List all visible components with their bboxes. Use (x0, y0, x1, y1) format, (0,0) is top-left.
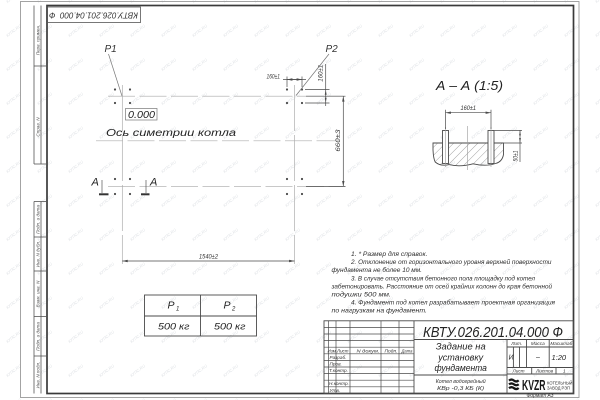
svg-text:А – А (1:5): А – А (1:5) (435, 79, 503, 93)
svg-text:Р: Р (224, 300, 231, 312)
svg-text:Котел водогрейный: Котел водогрейный (436, 378, 486, 385)
svg-text:Лист: Лист (512, 369, 525, 374)
svg-text:Дата: Дата (401, 349, 413, 354)
svg-text:фундамента: фундамента (434, 363, 487, 374)
svg-text:P1: P1 (105, 44, 117, 55)
svg-text:Масса: Масса (531, 341, 545, 346)
svg-text:–: – (535, 355, 540, 362)
svg-text:А: А (149, 176, 157, 188)
svg-text:Задание на: Задание на (436, 341, 486, 352)
svg-text:Н.контр.: Н.контр. (329, 381, 349, 386)
svg-text:Р: Р (168, 300, 175, 312)
svg-text:1: 1 (176, 307, 179, 313)
svg-text:Подп. и дата: Подп. и дата (35, 205, 40, 234)
svg-text:ЗАВОД РЭП: ЗАВОД РЭП (547, 386, 570, 391)
svg-text:Перв. примен.: Перв. примен. (35, 25, 40, 56)
svg-text:660±3: 660±3 (335, 129, 342, 151)
svg-text:Разраб.: Разраб. (330, 355, 347, 360)
svg-text:1540±2: 1540±2 (199, 253, 218, 260)
svg-text:Утв.: Утв. (330, 388, 341, 393)
svg-text:Инв. N подл.: Инв. N подл. (35, 362, 40, 389)
svg-text:160±1: 160±1 (318, 65, 324, 82)
svg-text:забетонировать. Расстояние от: забетонировать. Расстояние от осей крайн… (331, 282, 553, 290)
svg-text:Т.контр.: Т.контр. (329, 368, 348, 373)
svg-text:500 кг: 500 кг (158, 322, 190, 333)
svg-text:фундамента не более 10 мм.: фундамента не более 10 мм. (332, 266, 423, 274)
svg-text:Изм.Лист: Изм.Лист (328, 349, 349, 354)
svg-text:2: 2 (231, 307, 236, 313)
svg-text:500 кг: 500 кг (214, 322, 246, 333)
svg-text:КВТУ.026.201.04.000 Ф: КВТУ.026.201.04.000 Ф (423, 324, 563, 341)
svg-text:Взам. инв. N: Взам. инв. N (35, 280, 40, 307)
svg-text:Подп. и дата: Подп. и дата (35, 322, 40, 351)
svg-text:160±1: 160±1 (461, 106, 477, 112)
svg-text:Справ. N: Справ. N (35, 117, 40, 137)
svg-text:Инв. N дубл.: Инв. N дубл. (35, 241, 40, 268)
svg-text:1: 1 (563, 369, 566, 374)
svg-text:P2: P2 (326, 44, 339, 55)
svg-text:Пров.: Пров. (330, 362, 342, 367)
svg-text:Масштаб: Масштаб (550, 341, 572, 346)
svg-text:Подп.: Подп. (385, 349, 398, 354)
svg-text:КВр -0,3 КБ (К): КВр -0,3 КБ (К) (437, 386, 484, 392)
svg-text:50±1: 50±1 (514, 151, 520, 162)
svg-text:Формат А3: Формат А3 (527, 393, 554, 399)
svg-text:1. * Размер для справок.: 1. * Размер для справок. (351, 250, 428, 258)
svg-text:KVZR: KVZR (522, 378, 546, 394)
svg-text:1:20: 1:20 (552, 353, 567, 362)
svg-text:подушки 500 мм.: подушки 500 мм. (332, 290, 392, 298)
svg-text:0.000: 0.000 (128, 109, 155, 121)
svg-text:4. Фундамент под котел разраба: 4. Фундамент под котел разрабатывает про… (351, 298, 555, 306)
svg-text:2. Отклонение от горизонтально: 2. Отклонение от горизонтального уровня … (350, 258, 552, 266)
svg-text:160±1: 160±1 (267, 74, 281, 80)
svg-text:Ось симетрии котла: Ось симетрии котла (106, 128, 237, 139)
svg-text:КВТУ.026.201.04.000 Ф: КВТУ.026.201.04.000 Ф (48, 11, 138, 20)
svg-text:Лит.: Лит. (510, 341, 522, 346)
svg-text:N докум.: N докум. (357, 349, 380, 354)
svg-text:А: А (91, 176, 99, 188)
svg-text:по нагрузкам на фундамент.: по нагрузкам на фундамент. (332, 306, 428, 314)
svg-text:Листов: Листов (535, 369, 554, 374)
svg-text:3. В случае отсутствия бетонно: 3. В случае отсутствия бетонного пола пл… (351, 274, 535, 282)
